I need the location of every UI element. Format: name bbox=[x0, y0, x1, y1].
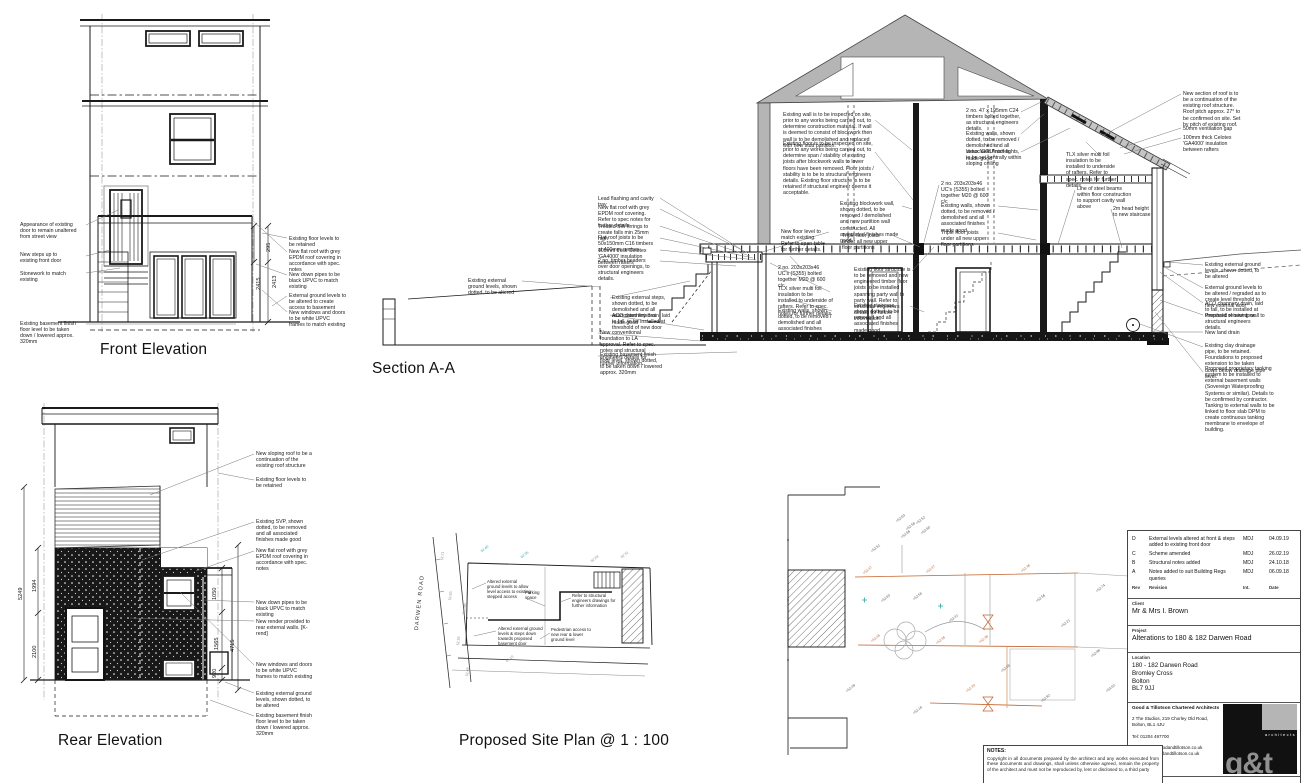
project-name: Alterations to 180 & 182 Darwen Road bbox=[1132, 635, 1296, 642]
revision-description: External levels altered at front & steps… bbox=[1149, 536, 1241, 548]
revision-header-rev: Rev bbox=[1132, 585, 1147, 590]
revision-table-header: Rev Revision Int. Date bbox=[1132, 585, 1297, 590]
logo-architects-text: architects bbox=[1265, 732, 1296, 737]
site-plan-drawing bbox=[433, 487, 1128, 755]
revision-row: A Notes added to suit Building Regs quer… bbox=[1132, 569, 1297, 581]
revision-row: D External levels altered at front & ste… bbox=[1132, 536, 1297, 548]
revision-letter: A bbox=[1132, 569, 1147, 581]
revision-initials: MDJ bbox=[1243, 551, 1267, 557]
revision-header-date: Date bbox=[1269, 585, 1299, 590]
divider bbox=[1128, 702, 1300, 703]
revision-initials: MDJ bbox=[1243, 569, 1267, 581]
project-label: Project bbox=[1132, 628, 1296, 633]
notes-box: NOTES: Copyright in all documents prepar… bbox=[983, 745, 1163, 783]
revision-date: 06.09.18 bbox=[1269, 569, 1299, 581]
revision-description: Structural notes added bbox=[1149, 560, 1241, 566]
site-plan-title: Proposed Site Plan @ 1 : 100 bbox=[459, 732, 669, 750]
revision-header-int: Int. bbox=[1243, 585, 1267, 590]
location-section: Location 180 - 182 Darwen Road Bromley C… bbox=[1132, 655, 1296, 693]
location-label: Location bbox=[1132, 655, 1296, 660]
revision-letter: B bbox=[1132, 560, 1147, 566]
project-section: Project Alterations to 180 & 182 Darwen … bbox=[1132, 628, 1296, 642]
linework-canvas bbox=[0, 0, 1301, 783]
section-drawing bbox=[383, 15, 1301, 372]
revision-initials: MDJ bbox=[1243, 536, 1267, 548]
revision-letter: C bbox=[1132, 551, 1147, 557]
revision-date: 26.02.19 bbox=[1269, 551, 1299, 557]
revision-description: Scheme amended bbox=[1149, 551, 1241, 557]
revision-date: 24.10.18 bbox=[1269, 560, 1299, 566]
section-title: Section A-A bbox=[372, 360, 455, 378]
client-name: Mr & Mrs I. Brown bbox=[1132, 608, 1296, 615]
client-section: Client Mr & Mrs I. Brown bbox=[1132, 601, 1296, 615]
divider bbox=[1128, 652, 1300, 653]
practice-logo: architects g&t bbox=[1223, 704, 1297, 774]
drawing-sheet: Appearance of existing door to remain un… bbox=[0, 0, 1301, 783]
location-line: 180 - 182 Darwen Road bbox=[1132, 662, 1296, 670]
revision-letter: D bbox=[1132, 536, 1147, 548]
notes-title: NOTES: bbox=[987, 748, 1159, 754]
revision-header-desc: Revision bbox=[1149, 585, 1241, 590]
practice-phone: Tel: 01204 497700 bbox=[1132, 734, 1220, 739]
location-line: Bromley Cross bbox=[1132, 670, 1296, 678]
revision-initials: MDJ bbox=[1243, 560, 1267, 566]
rear-elevation-title: Rear Elevation bbox=[58, 732, 162, 750]
location-line: BL7 9JJ bbox=[1132, 685, 1296, 693]
notes-body: Copyright in all documents prepared by t… bbox=[987, 756, 1159, 774]
practice-name: Good & Tillotson Chartered Architects bbox=[1132, 706, 1220, 711]
front-elevation-title: Front Elevation bbox=[100, 341, 207, 359]
logo-gray-square bbox=[1262, 704, 1297, 730]
front-elevation-drawing bbox=[58, 14, 300, 332]
divider bbox=[1128, 598, 1300, 599]
revision-row: C Scheme amended MDJ 26.02.19 bbox=[1132, 551, 1297, 557]
revision-row: B Structural notes added MDJ 24.10.18 bbox=[1132, 560, 1297, 566]
revision-date: 04.09.19 bbox=[1269, 536, 1299, 548]
rear-elevation-drawing bbox=[21, 403, 254, 716]
divider bbox=[1128, 625, 1300, 626]
practice-address: 2 The Studios, 219 Chorley Old Road, Bol… bbox=[1132, 716, 1220, 728]
revision-table: D External levels altered at front & ste… bbox=[1132, 536, 1297, 590]
logo-gt-text: g&t bbox=[1225, 747, 1272, 774]
revision-description: Notes added to suit Building Regs querie… bbox=[1149, 569, 1241, 581]
client-label: Client bbox=[1132, 601, 1296, 606]
location-line: Bolton bbox=[1132, 678, 1296, 686]
